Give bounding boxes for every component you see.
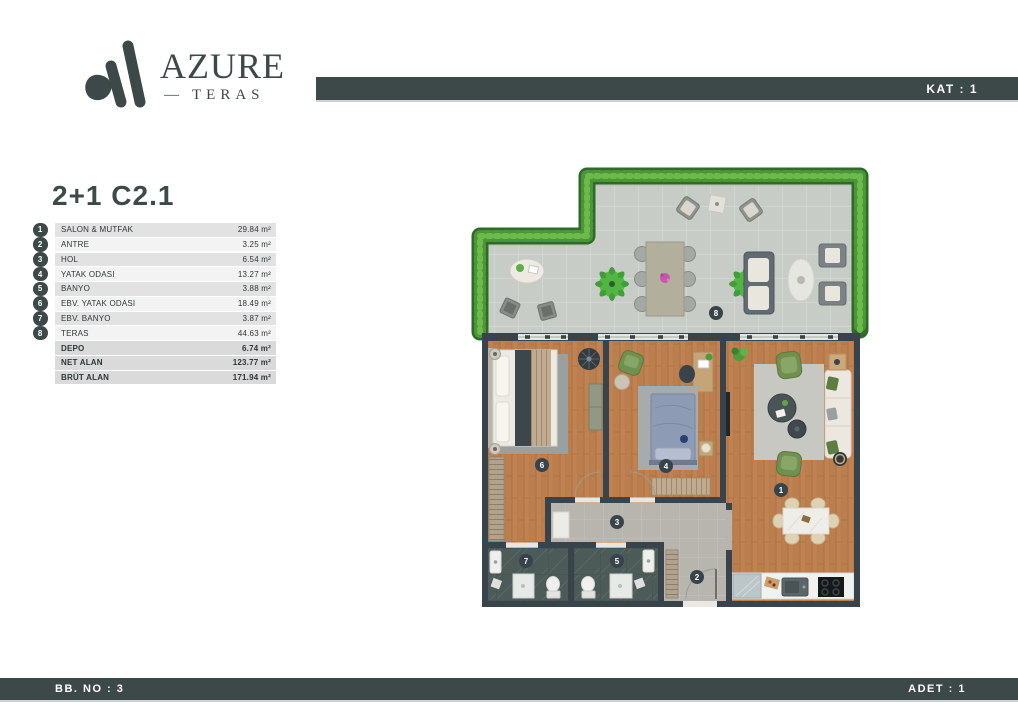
- svg-text:3: 3: [615, 518, 620, 527]
- table-total-row: NET ALAN 123.77 m²: [55, 356, 276, 370]
- brand-dash: —: [164, 87, 184, 104]
- floor-header-bar: KAT : 1: [316, 77, 1018, 102]
- room-area: 18.49 m²: [238, 299, 276, 308]
- room-label: ANTRE: [55, 240, 89, 249]
- brand-logo-text: AZURE — TERAS: [160, 48, 285, 104]
- table-row: 2 ANTRE 3.25 m²: [55, 238, 276, 252]
- table-row: 5 BANYO 3.88 m²: [55, 282, 276, 296]
- brand-logo: AZURE — TERAS: [80, 40, 285, 112]
- svg-text:2: 2: [695, 573, 700, 582]
- table-row: 4 YATAK ODASI 13.27 m²: [55, 267, 276, 281]
- table-row: 8 TERAS 44.63 m²: [55, 326, 276, 340]
- room-table: 1 SALON & MUTFAK 29.84 m² 2 ANTRE 3.25 m…: [55, 223, 276, 386]
- total-area: 171.94 m²: [233, 373, 276, 382]
- room-label: SALON & MUTFAK: [55, 225, 133, 234]
- terrace-dining-set: [635, 242, 696, 316]
- badge-room-8: 8: [709, 306, 723, 320]
- svg-text:6: 6: [540, 461, 545, 470]
- room-number-badge: 6: [33, 296, 48, 311]
- total-area: 6.74 m²: [242, 344, 276, 353]
- kitchen-counter: [732, 573, 854, 599]
- room-area: 3.87 m²: [242, 314, 276, 323]
- brand-subtitle: — TERAS: [160, 87, 285, 104]
- floor-plan: 8 6 4 1 3 2 7 5: [470, 158, 872, 614]
- room-number-badge: 1: [33, 223, 48, 238]
- brand-name: AZURE: [160, 48, 285, 84]
- badge-room-1: 1: [774, 483, 788, 497]
- svg-text:7: 7: [524, 557, 529, 566]
- room-area: 29.84 m²: [238, 225, 276, 234]
- svg-text:4: 4: [664, 462, 669, 471]
- badge-room-5: 5: [610, 554, 624, 568]
- table-row: 1 SALON & MUTFAK 29.84 m²: [55, 223, 276, 237]
- brand-logo-mark-icon: [80, 40, 150, 112]
- room-area: 3.25 m²: [242, 240, 276, 249]
- table-total-row: BRÜT ALAN 171.94 m²: [55, 371, 276, 385]
- room-area: 3.88 m²: [242, 284, 276, 293]
- room-number-badge: 8: [33, 326, 48, 341]
- windows: [518, 334, 838, 340]
- room-label: HOL: [55, 255, 78, 264]
- svg-text:5: 5: [615, 557, 620, 566]
- table-row: 7 EBV. BANYO 3.87 m²: [55, 312, 276, 326]
- room-area: 44.63 m²: [238, 329, 276, 338]
- room-label: BANYO: [55, 284, 90, 293]
- room-number-badge: 7: [33, 311, 48, 326]
- total-label: BRÜT ALAN: [55, 373, 109, 382]
- room-number-badge: 5: [33, 282, 48, 297]
- table-total-row: DEPO 6.74 m²: [55, 341, 276, 355]
- badge-room-4: 4: [659, 459, 673, 473]
- room-table-rows: 1 SALON & MUTFAK 29.84 m² 2 ANTRE 3.25 m…: [55, 223, 276, 384]
- room-label: TERAS: [55, 329, 89, 338]
- unit-number-label: BB. NO : 3: [55, 683, 124, 695]
- footer-bar: BB. NO : 3 ADET : 1: [0, 678, 1018, 702]
- room-number-badge: 2: [33, 237, 48, 252]
- plan-code-title: 2+1 C2.1: [52, 180, 174, 212]
- badge-room-2: 2: [690, 570, 704, 584]
- room-label: YATAK ODASI: [55, 270, 115, 279]
- room-number-badge: 3: [33, 252, 48, 267]
- room-label: EBV. YATAK ODASI: [55, 299, 135, 308]
- floor-label: KAT : 1: [926, 82, 978, 96]
- badge-room-7: 7: [519, 554, 533, 568]
- room-label: EBV. BANYO: [55, 314, 111, 323]
- table-row: 6 EBV. YATAK ODASI 18.49 m²: [55, 297, 276, 311]
- total-label: NET ALAN: [55, 358, 103, 367]
- badge-room-3: 3: [610, 515, 624, 529]
- svg-text:1: 1: [779, 486, 784, 495]
- table-row: 3 HOL 6.54 m²: [55, 253, 276, 267]
- total-label: DEPO: [55, 344, 84, 353]
- room-area: 6.54 m²: [242, 255, 276, 264]
- total-area: 123.77 m²: [233, 358, 276, 367]
- room-area: 13.27 m²: [238, 270, 276, 279]
- svg-text:8: 8: [714, 309, 719, 318]
- brand-subtitle-text: TERAS: [192, 87, 265, 104]
- room-number-badge: 4: [33, 267, 48, 282]
- badge-room-6: 6: [535, 458, 549, 472]
- quantity-label: ADET : 1: [908, 683, 966, 695]
